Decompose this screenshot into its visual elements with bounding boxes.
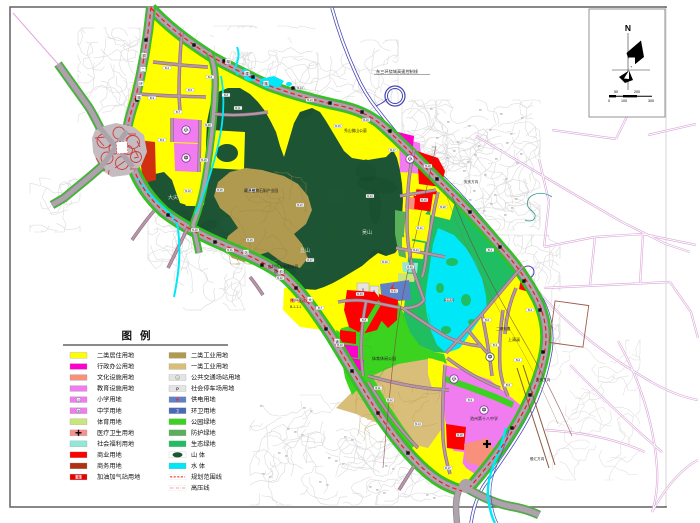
svg-text:上清溪: 上清溪 [508, 336, 520, 342]
svg-text:B-26: B-26 [247, 238, 253, 242]
svg-text:B-10: B-10 [185, 189, 191, 193]
svg-text:公: 公 [176, 376, 179, 380]
svg-text:安庆方向: 安庆方向 [464, 179, 479, 184]
svg-text:环卫用地: 环卫用地 [191, 407, 216, 415]
svg-text:B-28: B-28 [457, 433, 463, 437]
svg-text:B-5: B-5 [506, 383, 511, 387]
svg-text:B-28: B-28 [205, 123, 211, 127]
svg-text:B-8: B-8 [224, 93, 229, 97]
svg-text:东三环绕城高速控制线: 东三环绕城高速控制线 [376, 68, 419, 75]
svg-text:前: 前 [279, 269, 283, 274]
svg-text:B-11: B-11 [235, 106, 241, 110]
svg-text:藏原植物石斛产业园: 藏原植物石斛产业园 [244, 188, 278, 193]
svg-text:二类居住用地: 二类居住用地 [97, 352, 134, 360]
svg-text:二: 二 [141, 68, 145, 72]
svg-text:中: 中 [482, 407, 487, 414]
svg-text:湖: 湖 [226, 59, 230, 64]
svg-text:路: 路 [264, 81, 268, 86]
svg-text:B-29: B-29 [201, 158, 207, 162]
svg-text:B-25: B-25 [217, 188, 223, 192]
svg-text:B-41: B-41 [391, 289, 397, 293]
svg-text:山 体: 山 体 [191, 451, 206, 459]
svg-text:二期安置: 二期安置 [496, 326, 511, 331]
svg-text:规划范围线: 规划范围线 [191, 473, 222, 481]
svg-text:P: P [176, 386, 179, 391]
svg-text:B-14: B-14 [297, 86, 303, 90]
svg-text:B-23: B-23 [297, 203, 303, 207]
svg-text:铜: 铜 [142, 53, 146, 58]
svg-text:图例: 图例 [122, 329, 159, 342]
svg-text:医疗卫生用地: 医疗卫生用地 [97, 429, 134, 437]
svg-text:中学用地: 中学用地 [97, 407, 122, 415]
svg-text:池州第十八中学: 池州第十八中学 [470, 415, 498, 421]
svg-text:秀山佛山公墓: 秀山佛山公墓 [344, 128, 367, 133]
svg-text:B-13: B-13 [415, 422, 421, 426]
svg-text:B-49: B-49 [357, 292, 363, 296]
svg-text:B-7: B-7 [176, 110, 181, 114]
svg-text:小: 小 [452, 376, 457, 383]
svg-text:50: 50 [614, 90, 618, 94]
svg-text:加油加气站用地: 加油加气站用地 [97, 473, 140, 481]
svg-text:环: 环 [139, 82, 143, 86]
svg-text:0: 0 [608, 99, 610, 103]
svg-text:B-7: B-7 [318, 306, 323, 310]
svg-text:中: 中 [184, 155, 189, 162]
svg-text:N: N [625, 23, 631, 33]
svg-text:殷汇方向: 殷汇方向 [530, 456, 545, 461]
svg-text:B-16: B-16 [363, 118, 369, 122]
svg-text:B-1-1-1: B-1-1-1 [290, 305, 301, 309]
svg-text:B-3: B-3 [493, 343, 498, 347]
svg-text:B-12: B-12 [387, 398, 393, 402]
svg-text:B-6: B-6 [485, 318, 490, 322]
svg-text:高压线: 高压线 [191, 484, 210, 492]
svg-text:B-8: B-8 [362, 318, 367, 322]
svg-text:B-15: B-15 [335, 124, 341, 128]
svg-text:清溪湖库: 清溪湖库 [444, 298, 455, 302]
svg-text:B-44: B-44 [413, 248, 419, 252]
svg-text:B-9: B-9 [468, 398, 473, 402]
svg-text:吴山: 吴山 [362, 229, 372, 236]
svg-text:200: 200 [634, 90, 640, 94]
svg-text:文化设施用地: 文化设施用地 [97, 374, 134, 382]
svg-text:100: 100 [621, 99, 627, 103]
svg-text:商务用地: 商务用地 [97, 462, 122, 470]
svg-text:B-30: B-30 [192, 228, 198, 232]
svg-text:300: 300 [648, 99, 654, 103]
svg-text:B-46: B-46 [382, 260, 388, 264]
svg-text:B-2: B-2 [165, 66, 170, 70]
svg-text:吉利汽车有限公司: 吉利汽车有限公司 [268, 264, 299, 269]
svg-text:二类工业用地: 二类工业用地 [191, 352, 228, 360]
svg-text:B-32: B-32 [277, 276, 283, 280]
svg-text:B-17: B-17 [390, 148, 396, 152]
svg-text:B-13: B-13 [307, 98, 313, 102]
svg-text:B-27: B-27 [445, 466, 451, 470]
svg-text:B-11: B-11 [375, 386, 381, 390]
svg-text:水 体: 水 体 [191, 462, 206, 470]
svg-text:B-27: B-27 [307, 258, 313, 262]
svg-text:中: 中 [488, 354, 493, 361]
svg-text:路: 路 [137, 95, 141, 100]
svg-text:教育设施用地: 教育设施用地 [97, 385, 134, 393]
svg-text:B-4: B-4 [516, 358, 521, 362]
svg-text:B-1: B-1 [488, 248, 493, 252]
svg-text:供电用地: 供电用地 [191, 396, 216, 404]
svg-text:B-19: B-19 [421, 198, 427, 202]
svg-text:中: 中 [77, 409, 80, 413]
svg-text:B-40: B-40 [407, 265, 413, 269]
svg-text:B-21: B-21 [417, 226, 423, 230]
svg-text:社会停车场用地: 社会停车场用地 [191, 385, 234, 393]
svg-text:棚户区改造: 棚户区改造 [290, 297, 310, 303]
svg-text:站: 站 [244, 250, 248, 255]
svg-text:B-5: B-5 [188, 88, 193, 92]
svg-text:B-31: B-31 [227, 248, 233, 252]
svg-text:安庆方向: 安庆方向 [536, 377, 551, 382]
svg-text:B-9: B-9 [160, 138, 165, 142]
svg-text:一类工业用地: 一类工业用地 [191, 363, 228, 371]
svg-text:社会福利用地: 社会福利用地 [97, 440, 134, 448]
svg-text:大尖山: 大尖山 [168, 194, 183, 201]
svg-text:油: 油 [77, 474, 80, 479]
svg-text:小学用地: 小学用地 [97, 396, 122, 404]
svg-text:B-3: B-3 [150, 96, 155, 100]
svg-text:建: 建 [245, 71, 249, 76]
svg-text:公共交通场站用地: 公共交通场站用地 [191, 374, 241, 382]
svg-text:行政办公用地: 行政办公用地 [97, 363, 134, 371]
svg-text:大: 大 [308, 297, 312, 302]
svg-text:B-6: B-6 [208, 75, 213, 79]
svg-text:显山: 显山 [300, 247, 310, 254]
svg-text:生态绿地: 生态绿地 [191, 440, 216, 448]
svg-text:商业用地: 商业用地 [97, 451, 122, 459]
svg-text:B-24: B-24 [367, 194, 373, 198]
svg-text:体育用地: 体育用地 [97, 418, 122, 426]
svg-text:公园绿地: 公园绿地 [191, 418, 216, 426]
svg-text:小: 小 [184, 127, 189, 134]
svg-text:小: 小 [408, 156, 413, 163]
svg-text:B-2: B-2 [528, 308, 533, 312]
svg-text:B-18: B-18 [425, 164, 431, 168]
svg-text:道: 道 [335, 339, 339, 344]
svg-text:体育休闲公园: 体育休闲公园 [372, 355, 396, 361]
svg-text:B-20: B-20 [440, 205, 446, 209]
svg-text:防护绿地: 防护绿地 [191, 429, 216, 437]
svg-text:小: 小 [77, 398, 80, 402]
